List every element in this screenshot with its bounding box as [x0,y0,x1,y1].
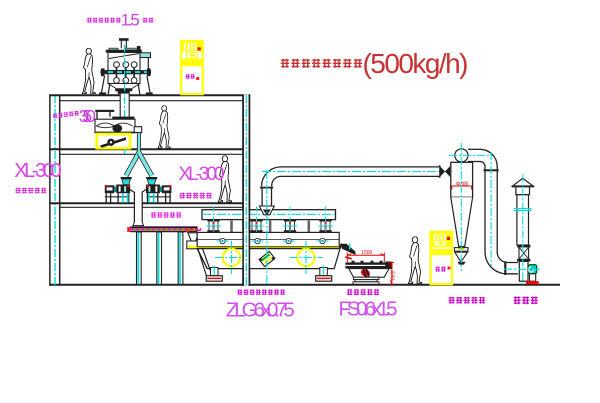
svg-text:(500kg/h): (500kg/h) [363,48,469,79]
svg-text:FS0.6x1.5: FS0.6x1.5 [339,298,398,321]
svg-text:1500: 1500 [361,250,372,256]
svg-text:Φ300: Φ300 [456,181,469,187]
svg-text:350: 350 [79,106,96,126]
svg-text:ZLG6x0.75: ZLG6x0.75 [226,298,295,321]
svg-text:540: 540 [388,271,394,280]
svg-text:1.5: 1.5 [121,10,140,29]
svg-text:XL-300: XL-300 [179,164,225,185]
svg-text:XL-300: XL-300 [14,160,62,182]
